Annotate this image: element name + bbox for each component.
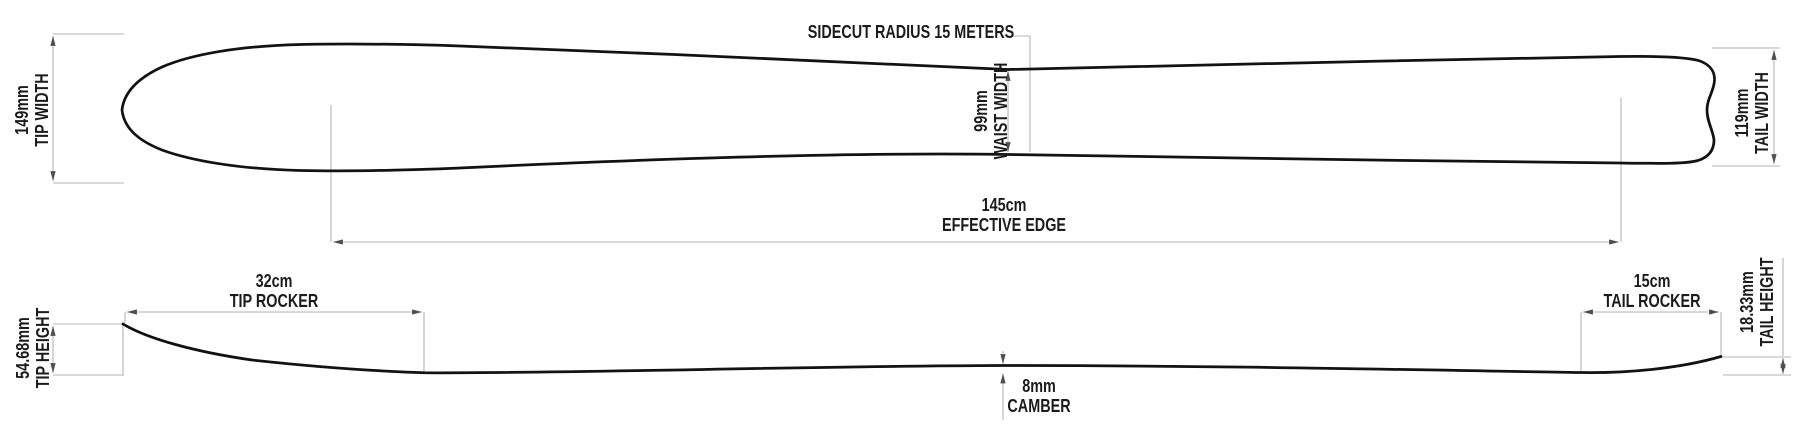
tip-rocker-label: 32cm TIP ROCKER [230, 271, 319, 311]
waist-width-label: 99mm WAIST WIDTH [971, 63, 1011, 160]
effective-edge-value: 145cm [942, 195, 1066, 215]
tip-width-label: 149mm TIP WIDTH [12, 73, 52, 146]
tail-height-value: 18.33mm [1737, 257, 1757, 346]
ski-spec-diagram: 149mm TIP WIDTH SIDECUT RADIUS 15 METERS… [0, 0, 1800, 425]
camber-value: 8mm [1007, 376, 1070, 396]
ski-profile-curve [123, 324, 1721, 373]
tail-rocker-label: 15cm TAIL ROCKER [1603, 271, 1700, 311]
tip-height-value: 54.68mm [13, 308, 33, 389]
tip-height-text: TIP HEIGHT [33, 308, 53, 389]
camber-label: 8mm CAMBER [1007, 376, 1070, 416]
tail-rocker-text: TAIL ROCKER [1603, 291, 1700, 311]
camber-text: CAMBER [1007, 396, 1070, 416]
waist-width-value: 99mm [971, 63, 991, 160]
ski-top-view-outline [122, 44, 1714, 171]
tip-rocker-value: 32cm [230, 271, 319, 291]
tail-height-label: 18.33mm TAIL HEIGHT [1737, 257, 1777, 346]
waist-width-text: WAIST WIDTH [991, 63, 1011, 160]
tip-width-value: 149mm [12, 73, 32, 146]
tip-height-label: 54.68mm TIP HEIGHT [13, 308, 53, 389]
sidecut-radius-text: SIDECUT RADIUS 15 METERS [808, 22, 1014, 42]
tip-rocker-text: TIP ROCKER [230, 291, 319, 311]
effective-edge-label: 145cm EFFECTIVE EDGE [942, 195, 1066, 235]
tail-rocker-value: 15cm [1603, 271, 1700, 291]
tail-width-text: TAIL WIDTH [1752, 72, 1772, 154]
sidecut-radius-label: SIDECUT RADIUS 15 METERS [808, 22, 1014, 42]
tail-height-text: TAIL HEIGHT [1757, 257, 1777, 346]
tail-width-label: 119mm TAIL WIDTH [1732, 72, 1772, 154]
effective-edge-text: EFFECTIVE EDGE [942, 215, 1066, 235]
diagram-canvas [0, 0, 1800, 425]
top-view [53, 34, 1780, 242]
tip-width-text: TIP WIDTH [32, 73, 52, 146]
tail-width-value: 119mm [1732, 72, 1752, 154]
